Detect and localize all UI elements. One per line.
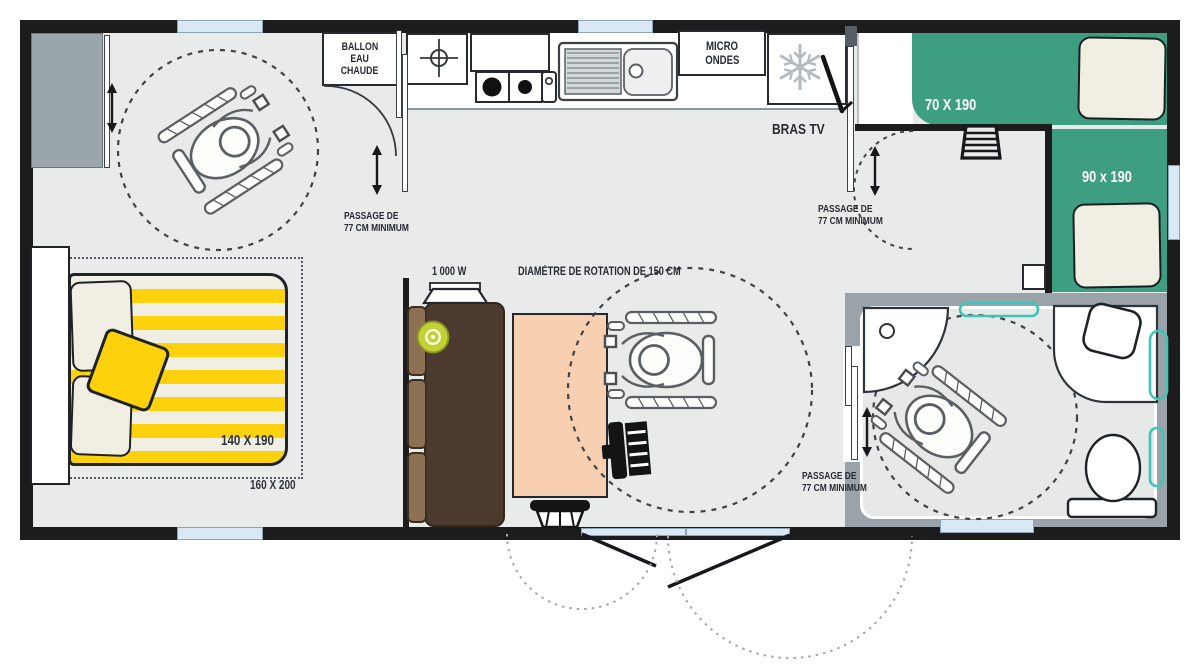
tv-arm-icon: [823, 57, 852, 111]
door-swing-arc-icon: [854, 131, 913, 249]
two-burner-hob-icon: [476, 72, 556, 102]
door-swing-arc-icon: [668, 536, 912, 658]
tv-arm-label: BRAS TV: [772, 121, 838, 138]
passage-label: PASSAGE DE 77 CM MINIMUM: [818, 203, 899, 227]
heater-power-label: 1 000 W: [432, 266, 475, 279]
bed-double-footprint-label: 160 X 200: [250, 478, 307, 492]
passage-label: PASSAGE DE 77 CM MINIMUM: [802, 470, 883, 494]
bed-bunk-top-label: 70 X 190: [925, 97, 989, 115]
bed-double-label: 140 X 190: [221, 433, 287, 450]
entrance-door-leaf: [668, 535, 790, 587]
plan-linework: [0, 0, 1200, 671]
round-cushion-icon: [418, 322, 449, 353]
entrance-door-leaf: [582, 534, 656, 566]
bed-single-right-label: 90 x 190: [1082, 169, 1144, 187]
shower-drain: [880, 324, 894, 338]
kitchen-sink-icon: [559, 43, 677, 100]
toilet-icon: [1068, 435, 1156, 517]
wall-heater-icon: [424, 283, 487, 303]
mobile-home-floor-plan: MICRO ONDES BALLON EAU CHAUDE: [0, 0, 1200, 671]
passage-label: PASSAGE DE 77 CM MINIMUM: [344, 210, 425, 234]
bunk-ladder-icon: [962, 126, 1000, 158]
rotation-circle: [568, 268, 812, 512]
snowflake-icon: [777, 44, 823, 90]
crosshair-circle-icon: [420, 39, 458, 77]
chair-icon: [530, 500, 590, 527]
door-swing-arc-icon: [324, 86, 396, 156]
chair-icon: [600, 419, 652, 480]
rotation-diameter-label: DIAMÈTRE DE ROTATION DE 150 CM: [518, 266, 721, 279]
door-swing-arc-icon: [507, 534, 657, 609]
